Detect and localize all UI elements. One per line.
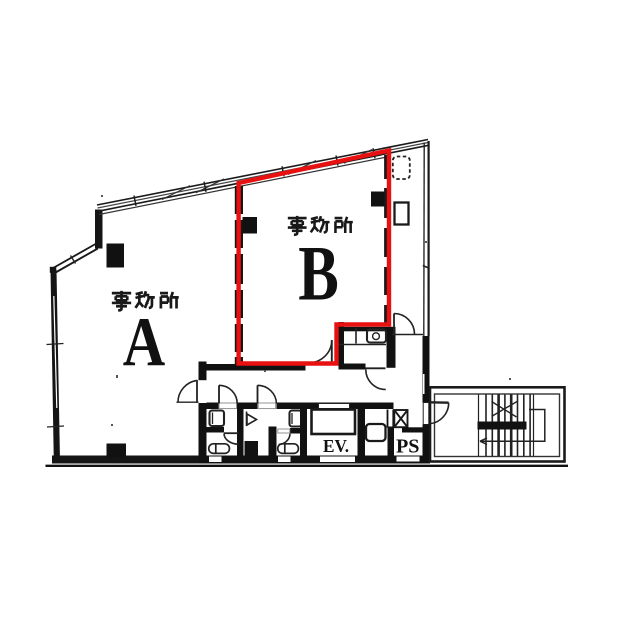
svg-text:B: B bbox=[298, 231, 339, 317]
svg-text:A: A bbox=[123, 303, 166, 381]
svg-text:PS: PS bbox=[396, 436, 420, 458]
svg-text:EV.: EV. bbox=[323, 436, 349, 456]
